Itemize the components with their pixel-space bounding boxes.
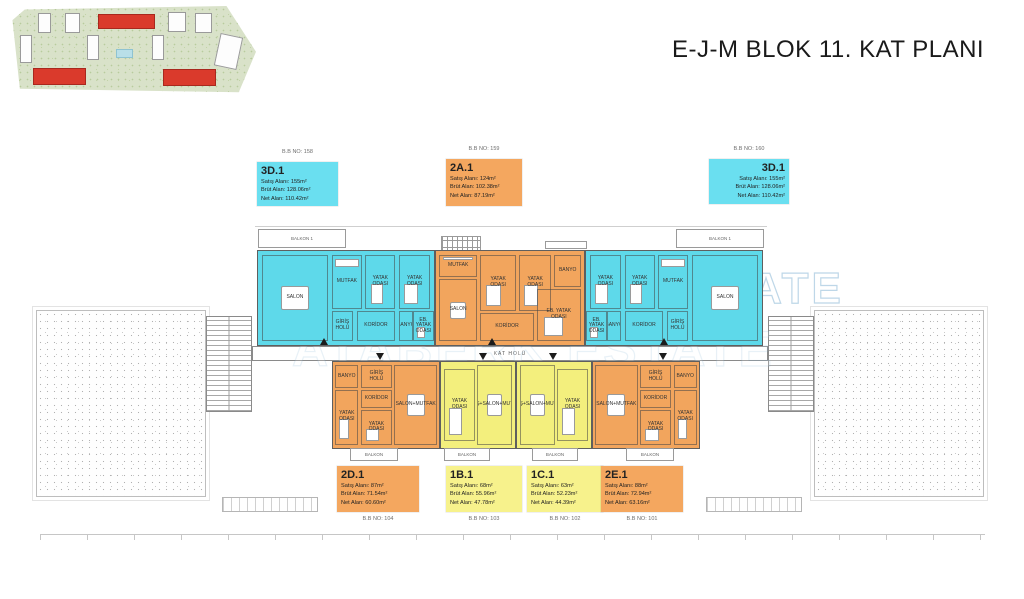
room-label: YATAK ODASI — [592, 276, 620, 288]
unit-code: 2D.1 — [341, 469, 415, 481]
info-box-2e-1-bottom3: 2E.1Satış Alanı: 88m²Brüt Alan: 72.94m²N… — [601, 466, 683, 512]
room-label: GİRİŞ HOLÜ — [669, 320, 686, 332]
room-label: YATAK ODASI — [627, 276, 653, 288]
room-label: KORİDOR — [364, 323, 387, 329]
unit-code: 2A.1 — [450, 162, 518, 174]
room-label: KORİDOR — [644, 396, 667, 402]
room-label: YATAK ODASI — [337, 411, 356, 423]
unit-area-line: Satış Alanı: 87m² — [341, 482, 415, 490]
room-label: YATAK ODASI — [446, 399, 473, 411]
unit-area-line: Brüt Alan: 128.06m² — [261, 186, 334, 194]
room-label: MUTFAK — [337, 279, 357, 285]
room-label: SALON+MUTFAK — [596, 402, 636, 408]
info-box-2d-1-bottom0: 2D.1Satış Alanı: 87m²Brüt Alan: 71.54m²N… — [337, 466, 419, 512]
room-label: GİRİŞ HOLÜ — [642, 371, 670, 383]
unit-area-line: Net Alan: 44.39m² — [531, 499, 599, 507]
info-box-3d-1-top0: 3D.1Satış Alanı: 155m²Brüt Alan: 128.06m… — [257, 162, 338, 206]
unit-code: 3D.1 — [713, 162, 785, 174]
unit-area-line: Net Alan: 87.19m² — [450, 192, 518, 200]
unit-area-line: Satış Alanı: 68m² — [450, 482, 518, 490]
bb-no-label: B.B NO: 101 — [627, 516, 658, 522]
unit-area-line: Net Alan: 110.42m² — [713, 192, 785, 200]
unit-area-line: Brüt Alan: 102.38m² — [450, 183, 518, 191]
info-box-1c-1-bottom2: 1C.1Satış Alanı: 63m²Brüt Alan: 52.23m²N… — [527, 466, 603, 512]
unit-area-line: Satış Alanı: 88m² — [605, 482, 679, 490]
info-box-2a-1-top1: 2A.1Satış Alanı: 124m²Brüt Alan: 102.38m… — [446, 159, 522, 206]
unit-area-line: Brüt Alan: 128.06m² — [713, 183, 785, 191]
unit-code: 3D.1 — [261, 165, 334, 177]
room-label: GİRİŞ HOLÜ — [334, 320, 351, 332]
room-label: GİRİŞ+SALON+MUTFAK — [520, 402, 556, 408]
unit-area-line: Net Alan: 110.42m² — [261, 195, 334, 203]
room-label: YATAK ODASI — [363, 422, 391, 434]
room-label: EB. YATAK ODASI — [539, 309, 579, 321]
unit-area-line: Net Alan: 63.16m² — [605, 499, 679, 507]
info-box-layer: B.B NO: 1583D.1Satış Alanı: 155m²Brüt Al… — [0, 0, 1024, 599]
room-label: YATAK ODASI — [642, 422, 670, 434]
room-label: KORİDOR — [365, 396, 388, 402]
room-label: YATAK ODASI — [676, 411, 695, 423]
bb-no-label: B.B NO: 158 — [282, 149, 313, 155]
unit-code: 1B.1 — [450, 469, 518, 481]
room-label: MUTFAK — [663, 279, 683, 285]
room-label: SALON+MUTFAK — [396, 402, 436, 408]
unit-area-line: Brüt Alan: 72.94m² — [605, 490, 679, 498]
bb-no-label: B.B NO: 104 — [363, 516, 394, 522]
room-label: YATAK ODASI — [401, 276, 429, 288]
room-label: YATAK ODASI — [559, 399, 586, 411]
room-label: YATAK ODASI — [521, 277, 550, 289]
unit-area-line: Net Alan: 47.78m² — [450, 499, 518, 507]
bb-no-label: B.B NO: 102 — [550, 516, 581, 522]
room-label: YATAK ODASI — [482, 277, 514, 289]
unit-area-line: Satış Alanı: 155m² — [261, 178, 334, 186]
room-label: EB. YATAK ODASI — [415, 318, 432, 335]
room-label: BANYO — [676, 374, 694, 380]
unit-area-line: Satış Alanı: 124m² — [450, 175, 518, 183]
room-label: GİRİŞ+SALON+MUTFAK — [477, 402, 513, 408]
room-label: BANYO — [338, 374, 356, 380]
unit-code: 2E.1 — [605, 469, 679, 481]
room-label: BANYO — [559, 268, 577, 274]
room-label: GİRİŞ HOLÜ — [363, 371, 391, 383]
unit-area-line: Brüt Alan: 71.54m² — [341, 490, 415, 498]
unit-area-line: Brüt Alan: 52.23m² — [531, 490, 599, 498]
unit-area-line: Satış Alanı: 155m² — [713, 175, 785, 183]
room-label: KORİDOR — [632, 323, 655, 329]
room-label: SALON — [717, 295, 734, 301]
room-label: YATAK ODASI — [367, 276, 393, 288]
unit-code: 1C.1 — [531, 469, 599, 481]
bb-no-label: B.B NO: 160 — [734, 146, 765, 152]
room-label: MUTFAK — [448, 263, 468, 269]
room-label: KORİDOR — [495, 324, 518, 330]
unit-area-line: Net Alan: 60.60m² — [341, 499, 415, 507]
room-label: SALON — [286, 295, 303, 301]
unit-area-line: Brüt Alan: 55.96m² — [450, 490, 518, 498]
floor-plan-page: E-J-M BLOK 11. KAT PLANI KAT HOLÜ ATABER… — [0, 0, 1024, 599]
room-label: BANYO — [399, 323, 413, 329]
room-label: SALON — [450, 307, 467, 313]
info-box-3d-1-top2: 3D.1Satış Alanı: 155m²Brüt Alan: 128.06m… — [709, 159, 789, 204]
room-label: EB. YATAK ODASI — [588, 318, 605, 335]
room-label: BANYO — [607, 323, 621, 329]
info-box-1b-1-bottom1: 1B.1Satış Alanı: 68m²Brüt Alan: 55.96m²N… — [446, 466, 522, 512]
bb-no-label: B.B NO: 159 — [469, 146, 500, 152]
bb-no-label: B.B NO: 103 — [469, 516, 500, 522]
unit-area-line: Satış Alanı: 63m² — [531, 482, 599, 490]
